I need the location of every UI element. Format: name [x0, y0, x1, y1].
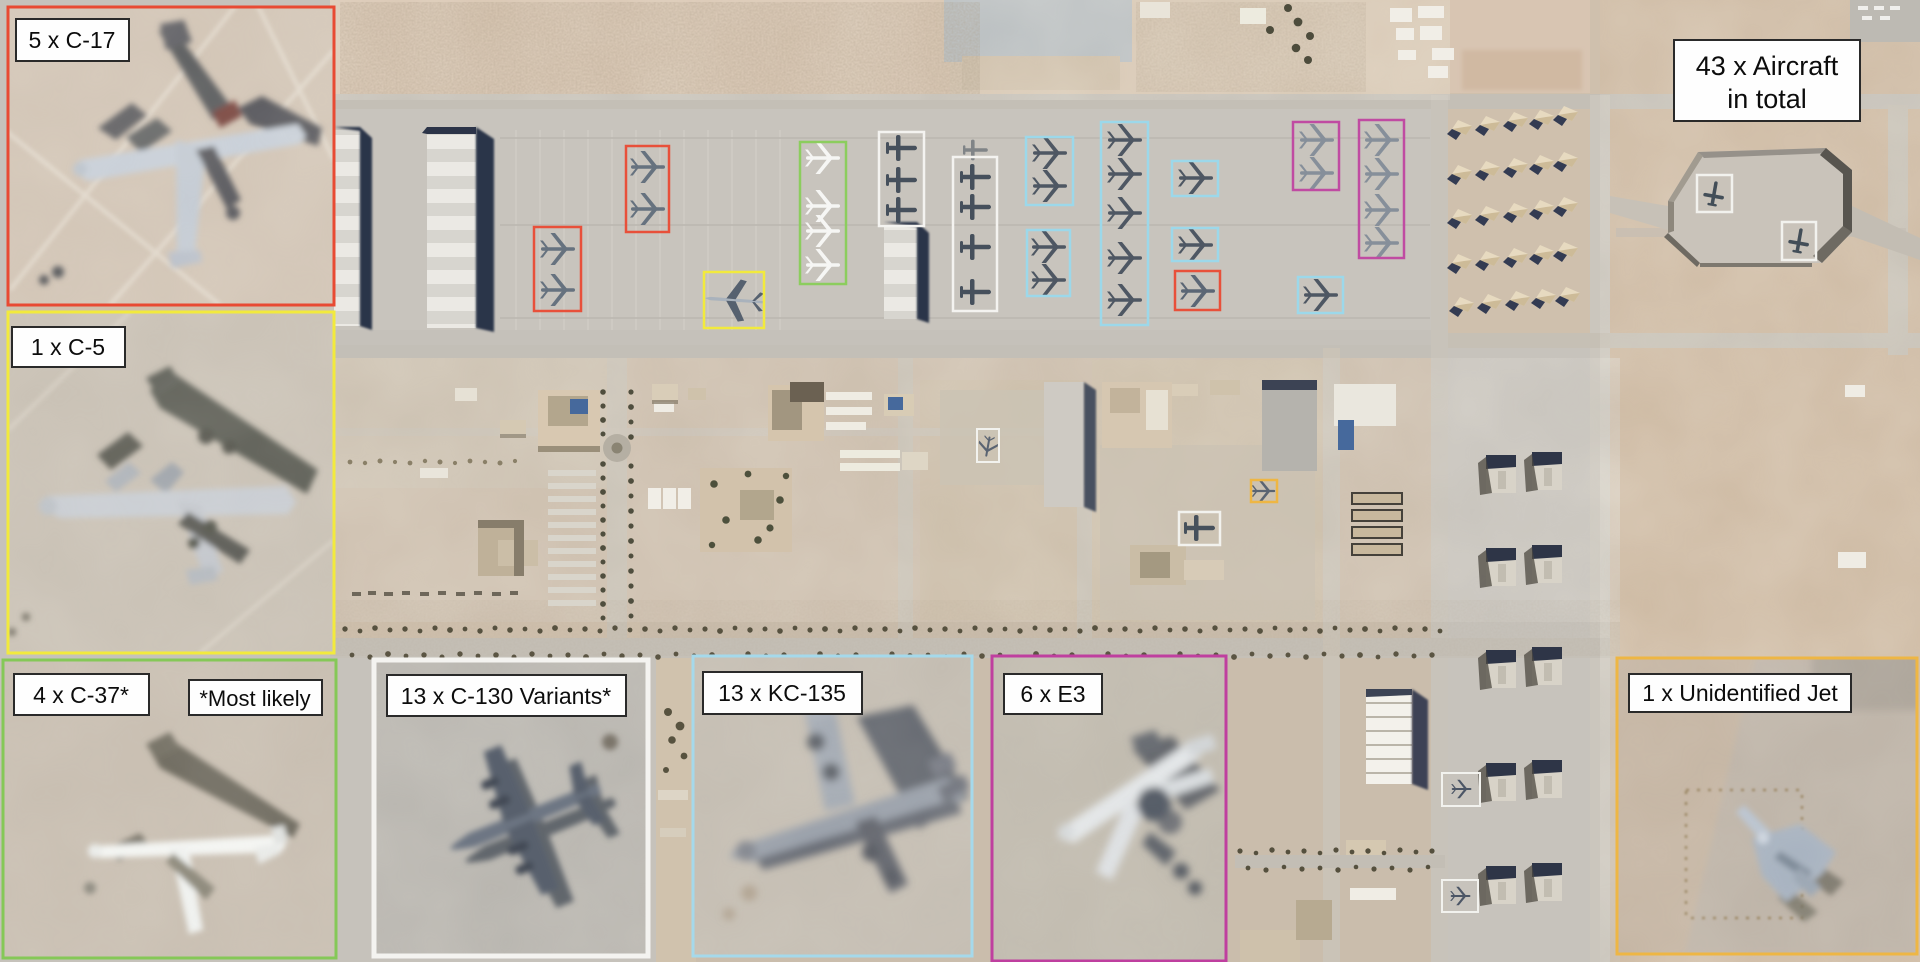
svg-text:4 x C-37*: 4 x C-37*: [33, 682, 129, 708]
svg-text:13 x KC-135: 13 x KC-135: [718, 680, 846, 706]
svg-text:43 x Aircraft: 43 x Aircraft: [1696, 51, 1839, 81]
svg-text:1 x Unidentified Jet: 1 x Unidentified Jet: [1642, 680, 1838, 706]
svg-text:6 x E3: 6 x E3: [1020, 681, 1085, 707]
svg-text:1 x C-5: 1 x C-5: [31, 334, 105, 360]
svg-text:5 x C-17: 5 x C-17: [29, 27, 116, 53]
svg-text:in total: in total: [1727, 84, 1807, 114]
svg-text:*Most likely: *Most likely: [199, 686, 310, 711]
svg-text:13 x C-130 Variants*: 13 x C-130 Variants*: [401, 683, 612, 709]
